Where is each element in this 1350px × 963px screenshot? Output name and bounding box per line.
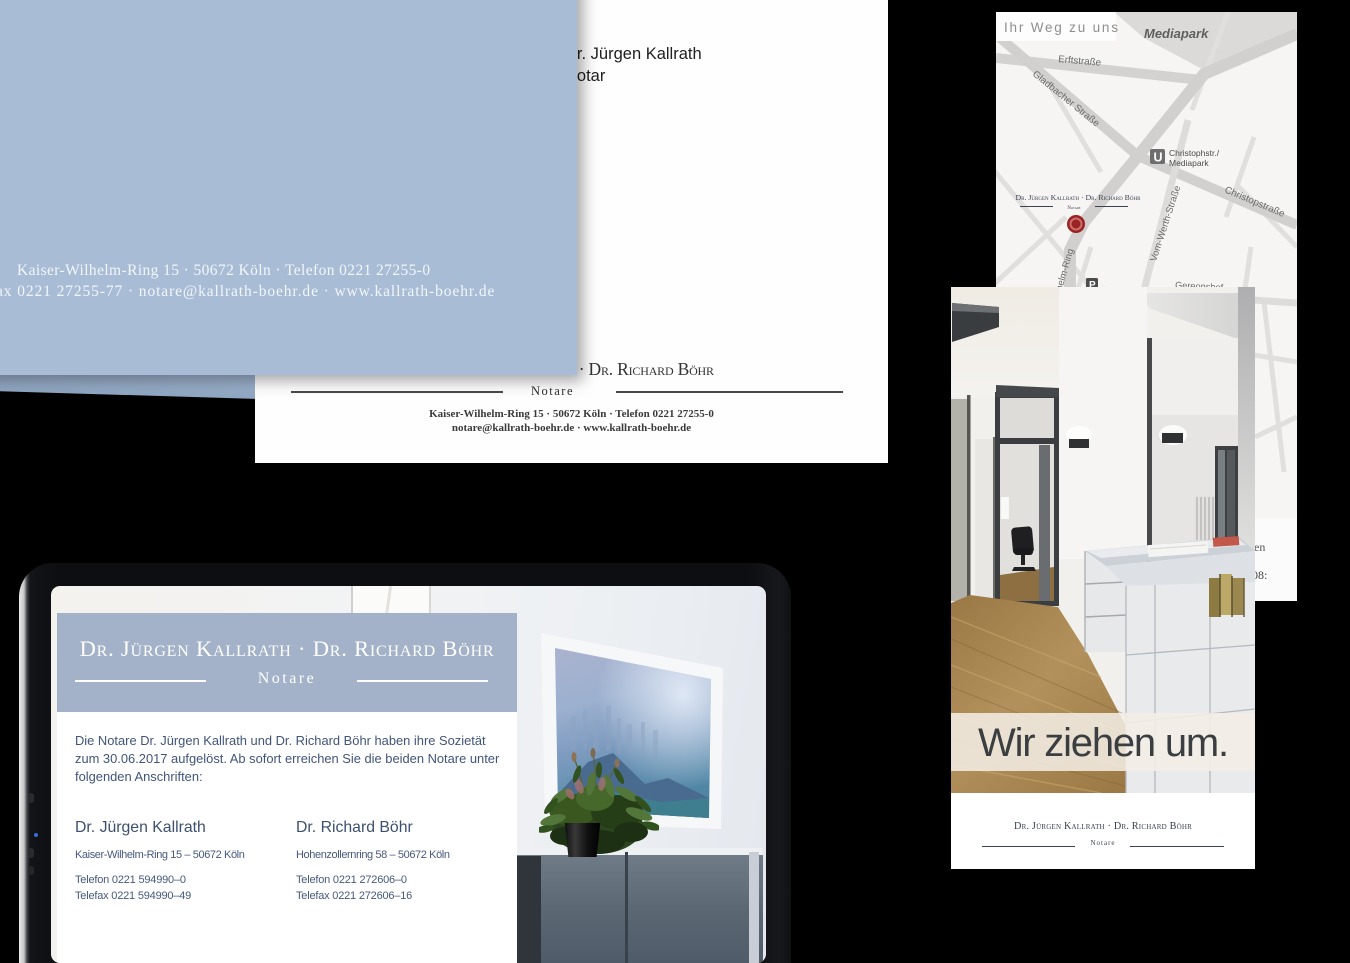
- svg-text:Mediapark: Mediapark: [1144, 26, 1209, 41]
- svg-text:Gladbacher Straße: Gladbacher Straße: [1030, 69, 1102, 130]
- svg-text:Mediapark: Mediapark: [1169, 158, 1209, 168]
- svg-text:Ihr Weg zu uns: Ihr Weg zu uns: [1004, 20, 1120, 35]
- svg-text:Christophstr./: Christophstr./: [1169, 148, 1220, 158]
- svg-text:Dr. Jürgen Kallrath · Dr. Rich: Dr. Jürgen Kallrath · Dr. Richard Böhr: [1016, 193, 1142, 202]
- svg-text:Notare: Notare: [1067, 206, 1080, 211]
- svg-text:U: U: [1154, 151, 1163, 165]
